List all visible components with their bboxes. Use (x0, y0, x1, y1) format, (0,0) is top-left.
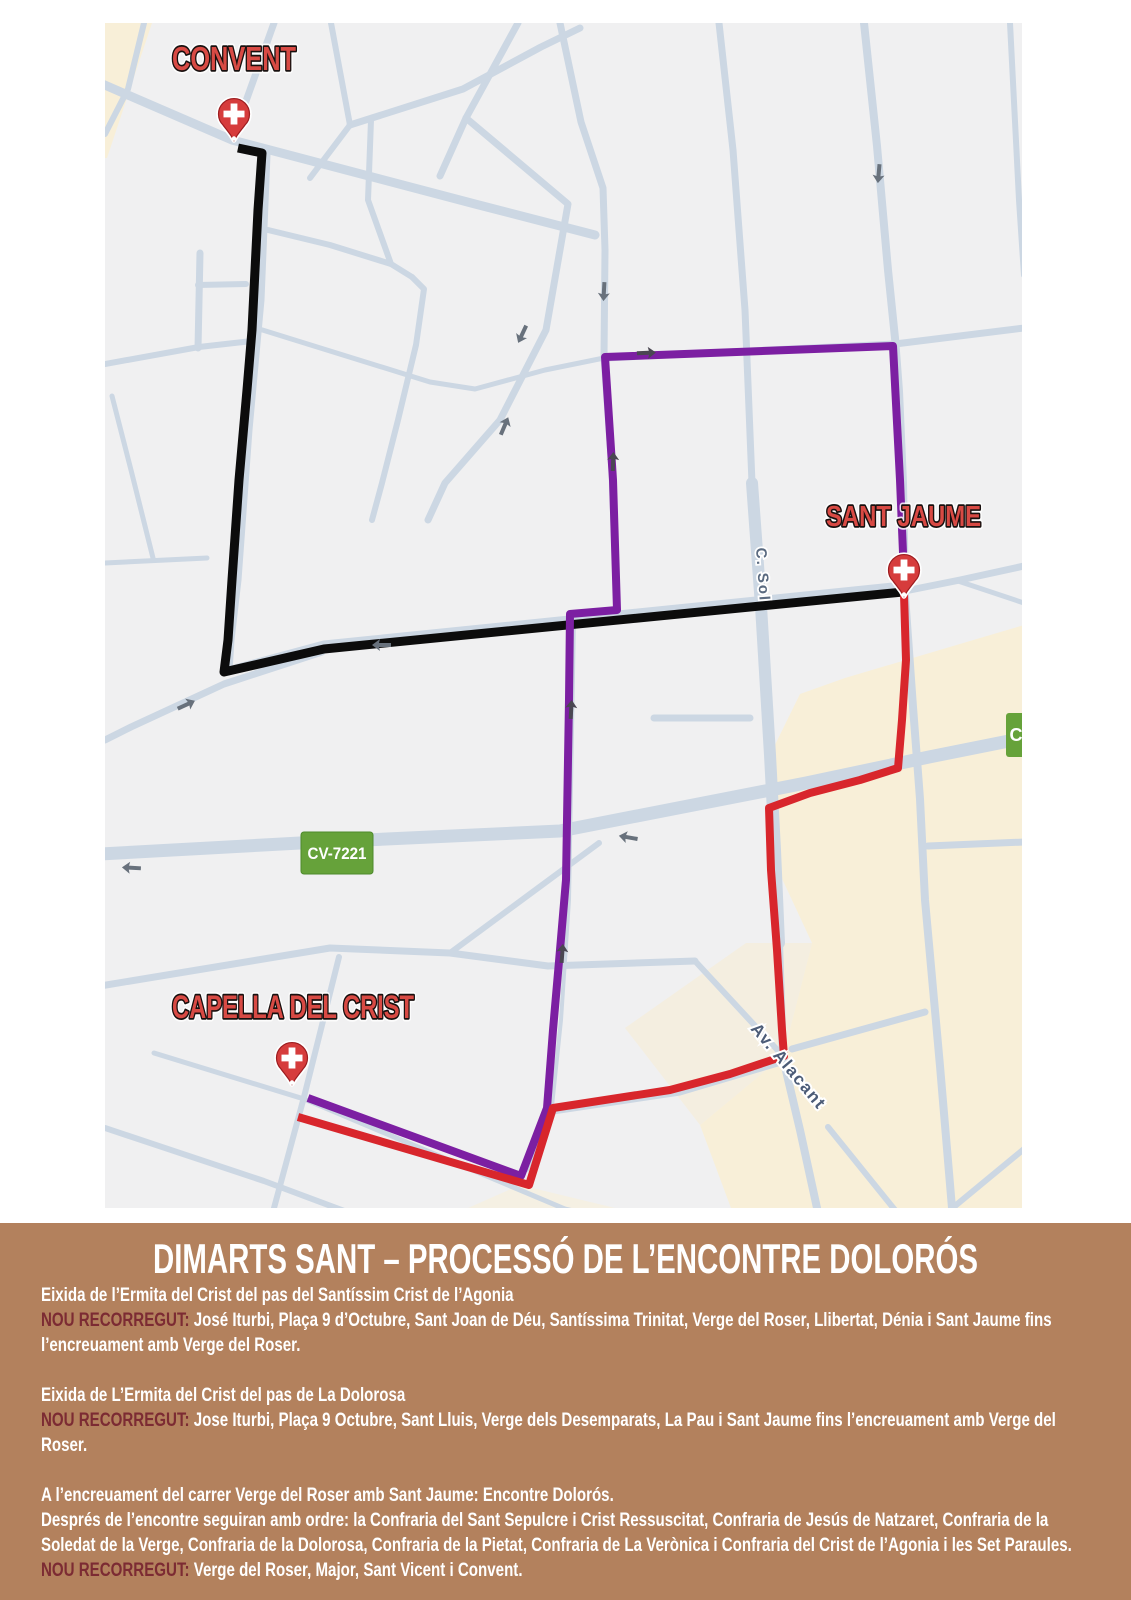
svg-text:CONVENT: CONVENT (172, 40, 296, 77)
svg-text:C: C (1010, 725, 1023, 745)
svg-text:CV-7221: CV-7221 (308, 844, 367, 863)
svg-text:SANT JAUME: SANT JAUME (826, 501, 981, 533)
svg-text:CAPELLA DEL CRIST: CAPELLA DEL CRIST (172, 989, 414, 1025)
